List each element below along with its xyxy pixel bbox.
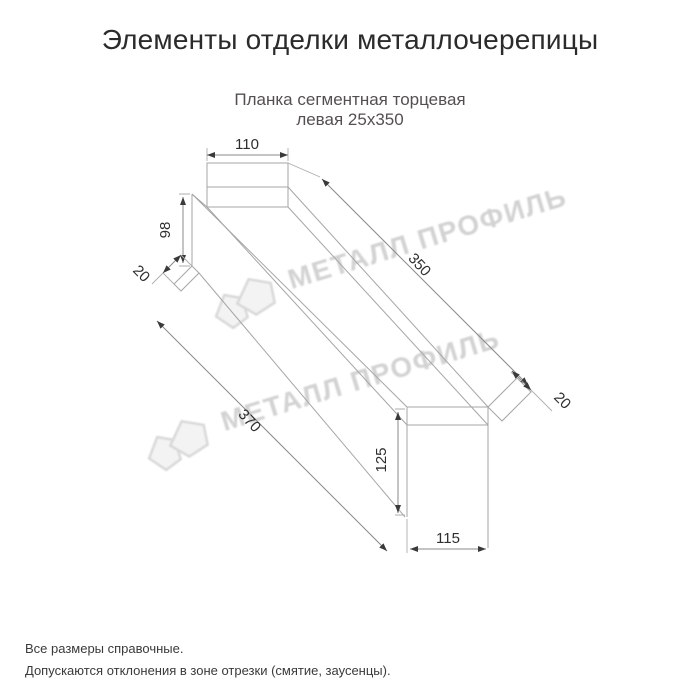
dim-label-20-right: 20: [550, 389, 574, 413]
dim-label-110: 110: [235, 136, 259, 153]
watermark-lower: МЕТАЛЛ ПРОФИЛЬ: [141, 322, 508, 473]
dim-label-20-left: 20: [129, 262, 153, 286]
near-end-face: [207, 163, 288, 207]
far-hem-flap: [488, 378, 531, 421]
dimension-right-height: 125: [373, 409, 405, 515]
footnote-line2: Допускаются отклонения в зоне отрезки (с…: [25, 660, 675, 682]
dim-label-98: 98: [157, 222, 174, 239]
footnotes: Все размеры справочные. Допускаются откл…: [25, 638, 675, 682]
dim-label-115: 115: [436, 530, 460, 547]
dimension-left-height: 98: [157, 194, 190, 266]
watermark-upper: МЕТАЛЛ ПРОФИЛЬ: [208, 180, 575, 331]
watermark-text: МЕТАЛЛ ПРОФИЛЬ: [284, 180, 570, 294]
dimension-top-width: 110: [207, 136, 288, 161]
footnote-line1: Все размеры справочные.: [25, 638, 675, 660]
technical-drawing: МЕТАЛЛ ПРОФИЛЬ МЕТАЛЛ ПРОФИЛЬ 110: [0, 0, 700, 700]
dimension-bottom-width: 115: [407, 519, 486, 553]
watermark-logo-icon: [141, 415, 213, 473]
near-hem-flap: [174, 266, 199, 291]
dim-label-125: 125: [373, 447, 390, 472]
watermark-logo-icon: [208, 273, 280, 331]
long-edge-bottom: [199, 273, 405, 517]
